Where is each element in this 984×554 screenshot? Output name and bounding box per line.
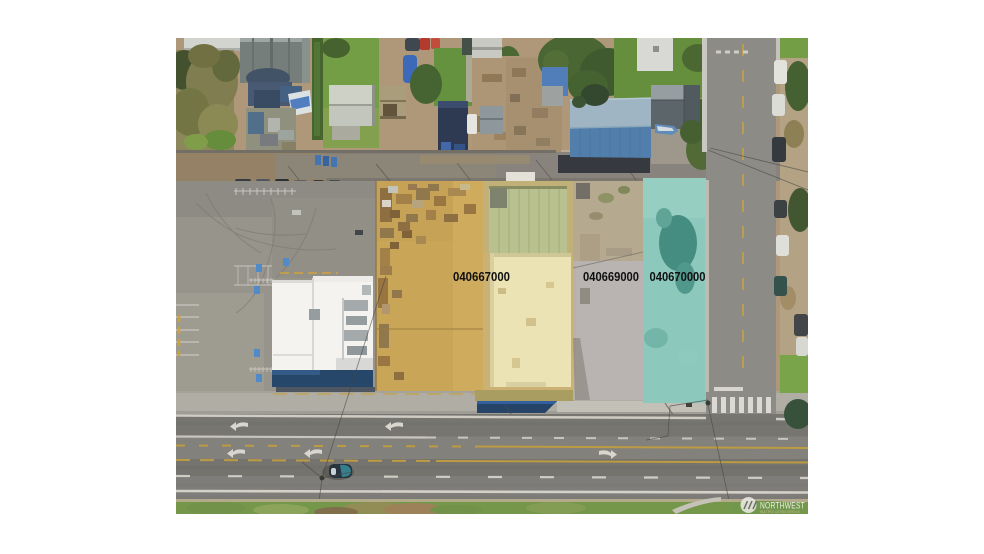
svg-text:NORTHWEST: NORTHWEST xyxy=(760,501,805,511)
svg-text:040669000: 040669000 xyxy=(583,270,639,284)
svg-text:MULTIPLE LISTING SERVICE: MULTIPLE LISTING SERVICE xyxy=(760,510,801,514)
svg-text:040670000: 040670000 xyxy=(650,270,706,284)
svg-text:040667000: 040667000 xyxy=(453,270,510,284)
